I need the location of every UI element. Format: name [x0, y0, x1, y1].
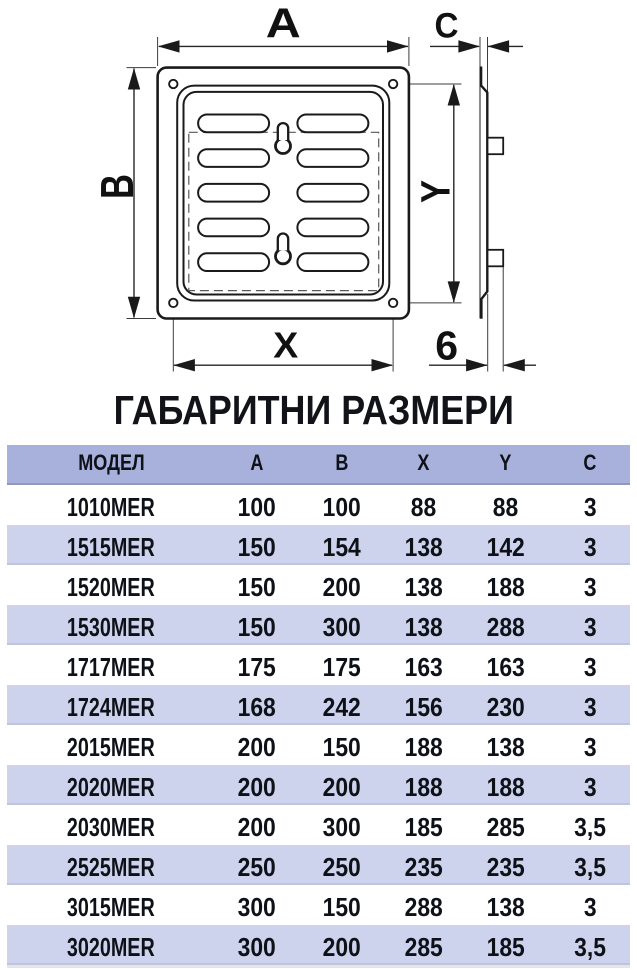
- svg-text:X: X: [273, 325, 298, 366]
- svg-text:Y: Y: [412, 180, 458, 203]
- svg-text:B: B: [91, 174, 143, 199]
- svg-text:A: A: [266, 0, 301, 47]
- svg-text:C: C: [435, 7, 459, 46]
- svg-text:6: 6: [435, 322, 458, 368]
